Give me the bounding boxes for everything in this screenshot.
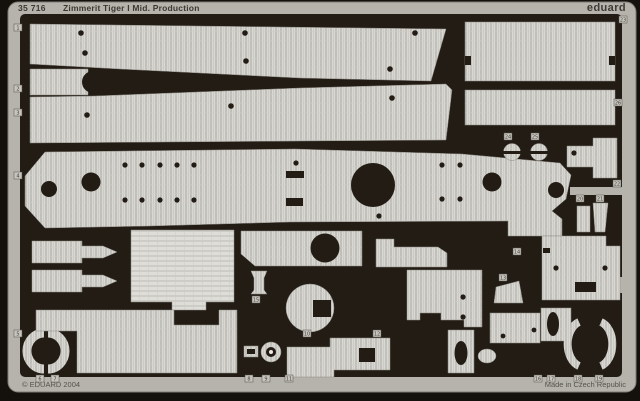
part-number-label: 24 — [505, 134, 511, 140]
etch-sheet-svg: 1234567891011121314151617181920212223242… — [0, 0, 640, 401]
frame-side-tab — [618, 277, 634, 293]
hole — [376, 213, 381, 218]
copyright-rail: © EDUARD 2004 Made in Czech Republic — [8, 378, 635, 392]
part-number-label: 25 — [532, 134, 538, 140]
hole — [82, 173, 101, 192]
hole — [571, 150, 576, 155]
part-number-tag: 22 — [613, 180, 621, 187]
side-plate-upper — [465, 22, 615, 81]
part-number-tag: 13 — [499, 274, 507, 281]
hole — [191, 197, 196, 202]
hole — [501, 334, 506, 339]
part-number-tag: 12 — [373, 330, 381, 337]
hole — [457, 196, 462, 201]
corner-notch — [543, 248, 550, 253]
hole — [293, 160, 298, 165]
oval-cutout — [547, 312, 559, 336]
hole — [412, 30, 418, 36]
side-plate-lower — [465, 90, 615, 125]
hole — [460, 314, 465, 319]
part-number-label: 10 — [304, 331, 310, 337]
title-rail: 35 716 Zimmerit Tiger I Mid. Production … — [8, 2, 635, 14]
part-number-label: 12 — [374, 331, 380, 337]
copyright-text: © EDUARD 2004 — [22, 378, 80, 392]
part-number-tag: 5 — [14, 330, 22, 337]
hole — [389, 95, 395, 101]
part-number-label: 21 — [597, 196, 603, 202]
part-number-label: 4 — [16, 173, 19, 179]
slot — [575, 282, 596, 292]
part-number-label: 26 — [615, 100, 621, 106]
hole — [228, 103, 234, 109]
hole — [387, 66, 393, 72]
disc-slot — [503, 151, 521, 154]
hole — [157, 162, 162, 167]
part-number-tag: 21 — [596, 195, 604, 202]
hole — [483, 173, 502, 192]
brand-logo: eduard — [587, 2, 626, 14]
made-in-text: Made in Czech Republic — [545, 378, 626, 392]
oval-cutout — [455, 341, 468, 365]
hole — [311, 234, 340, 263]
part-number-label: 23 — [620, 17, 626, 23]
product-photo-pe-fret: 1234567891011121314151617181920212223242… — [0, 0, 640, 401]
part-number-tag: 1 — [14, 24, 22, 31]
part-number-label: 13 — [500, 275, 506, 281]
part-number-tag: 3 — [14, 109, 22, 116]
part-number-label: 3 — [16, 110, 19, 116]
part-number-label: 5 — [16, 331, 19, 337]
disc-slot — [530, 151, 548, 154]
hatch-plate — [407, 270, 482, 327]
square-cutout — [313, 300, 331, 317]
large-square-plate — [131, 230, 234, 310]
part-number-label: 15 — [253, 297, 259, 303]
part-number-tag: 10 — [303, 330, 311, 337]
hole — [553, 265, 558, 270]
hole — [139, 162, 144, 167]
part-number-label: 1 — [16, 25, 19, 31]
hole — [174, 197, 179, 202]
fan-opening — [351, 163, 395, 207]
sheet-title: Zimmerit Tiger I Mid. Production — [63, 2, 200, 14]
edge-notch — [609, 56, 615, 65]
hole — [139, 197, 144, 202]
part-number-tag: 14 — [513, 248, 521, 255]
hole — [78, 30, 84, 36]
part-number-tag: 23 — [619, 16, 627, 23]
hole — [439, 196, 444, 201]
hole — [191, 162, 196, 167]
slot — [286, 198, 303, 206]
hole — [460, 294, 465, 299]
hole — [122, 162, 127, 167]
hole — [439, 162, 444, 167]
hole — [457, 162, 462, 167]
hole — [532, 328, 537, 333]
catalog-number: 35 716 — [18, 2, 46, 14]
hole — [242, 30, 248, 36]
part-number-label: 2 — [16, 86, 19, 92]
slot — [247, 349, 255, 354]
hole — [41, 181, 57, 197]
hole — [82, 50, 88, 56]
part-number-label: 20 — [577, 196, 583, 202]
hole — [157, 197, 162, 202]
washer-center — [269, 350, 273, 354]
hole — [84, 112, 90, 118]
bracket-part — [30, 69, 88, 95]
bracket-notch — [82, 71, 104, 93]
slot — [286, 171, 304, 178]
part-number-tag: 25 — [531, 133, 539, 140]
hole — [548, 182, 564, 198]
hole — [602, 265, 607, 270]
hole — [243, 58, 249, 64]
part-number-label: 22 — [614, 181, 620, 187]
small-oval-part — [478, 349, 496, 363]
hole — [174, 162, 179, 167]
edge-notch — [465, 56, 471, 65]
part-number-tag: 15 — [252, 296, 260, 303]
part-number-tag: 26 — [614, 99, 622, 106]
bottom-plate-right — [490, 313, 540, 343]
part-number-label: 14 — [514, 249, 520, 255]
part-number-tag: 2 — [14, 85, 22, 92]
part-number-tag: 4 — [14, 172, 22, 179]
part-number-tag: 24 — [504, 133, 512, 140]
fan-cover-plate — [241, 231, 362, 266]
hole — [122, 197, 127, 202]
small-rect-part — [577, 206, 590, 232]
frame-crossbar — [570, 187, 622, 195]
plate-notch — [359, 348, 375, 362]
part-number-tag: 20 — [576, 195, 584, 202]
